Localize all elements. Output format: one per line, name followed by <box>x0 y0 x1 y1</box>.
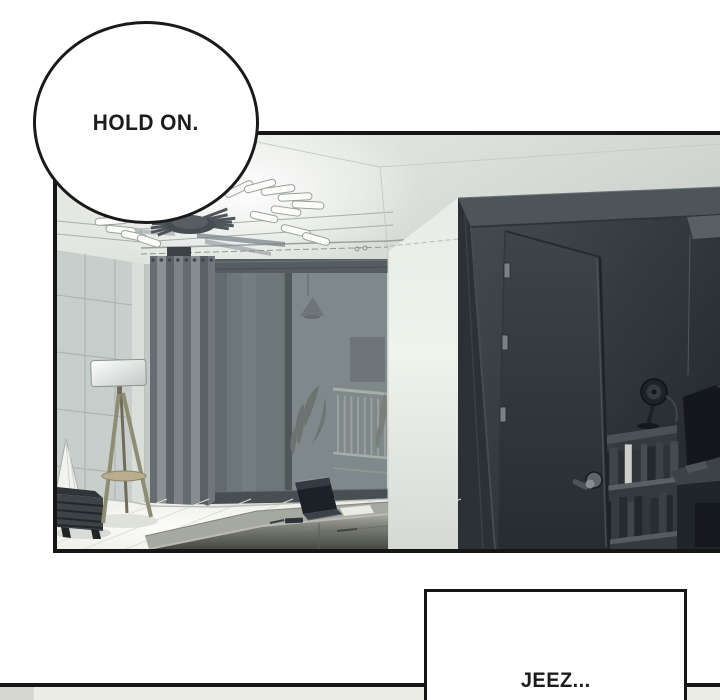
next-panel-shadow <box>0 687 34 700</box>
speech-box-jeez: JEEZ... <box>424 589 687 700</box>
hinge-icon <box>504 263 510 278</box>
phone-icon <box>285 518 303 524</box>
curtain <box>150 247 215 508</box>
speech-text-hold-on: HOLD ON. <box>93 110 199 136</box>
doorway <box>458 187 720 549</box>
hinge-icon <box>502 335 508 350</box>
window-reflection <box>350 337 385 382</box>
speech-bubble-hold-on: HOLD ON. <box>33 21 259 224</box>
hinge-icon <box>500 407 506 422</box>
speech-text-jeez: JEEZ... <box>521 669 591 693</box>
comic-page: JEEZ... HOLD ON. <box>0 0 720 700</box>
open-door <box>497 231 609 549</box>
right-wall <box>388 198 458 549</box>
